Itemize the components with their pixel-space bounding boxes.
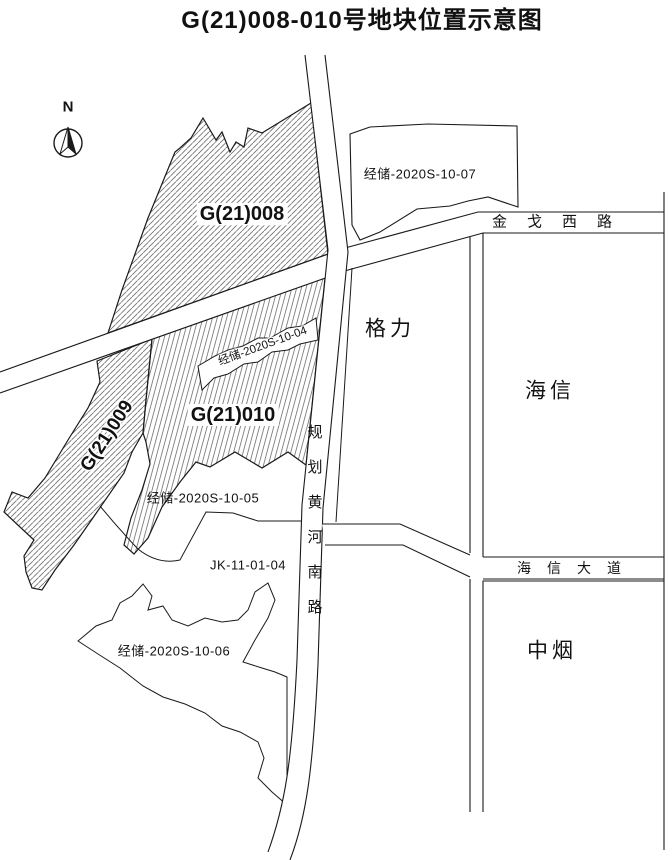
block-zhongyan-outline — [483, 581, 664, 812]
parcel-label-jingchu-10-07: 经储-2020S-10-07 — [364, 168, 477, 181]
landmark-label-haixin: 海信 — [525, 381, 575, 402]
parcel-label-g010: G(21)010 — [188, 404, 279, 426]
parcel-label-jingchu-10-05: 经储-2020S-10-05 — [147, 492, 260, 505]
parcel-label-g008: G(21)008 — [197, 203, 288, 225]
compass-north-label: N — [63, 100, 74, 115]
road-label-guihua-huanghe-nan-lu: 规划黄河南路 — [307, 424, 322, 634]
parcel-label-jk-11-01-04: JK-11-01-04 — [210, 559, 286, 572]
parcel-jingchu-10-06 — [78, 583, 287, 805]
road-label-jinge-xi-lu: 金戈西路 — [492, 215, 632, 230]
road-haixin-west-body — [322, 524, 470, 577]
land-parcel-location-map: G(21)008-010号地块位置示意图 N G(21)008 G(21)009… — [0, 0, 672, 860]
landmark-label-zhongyan: 中烟 — [527, 641, 577, 662]
compass-icon — [54, 127, 82, 157]
map-title: G(21)008-010号地块位置示意图 — [181, 9, 542, 33]
landmark-label-geli: 格力 — [365, 319, 415, 340]
parcel-label-jingchu-10-06: 经储-2020S-10-06 — [118, 645, 231, 658]
road-label-haixin-dadao: 海信大道 — [517, 561, 637, 575]
